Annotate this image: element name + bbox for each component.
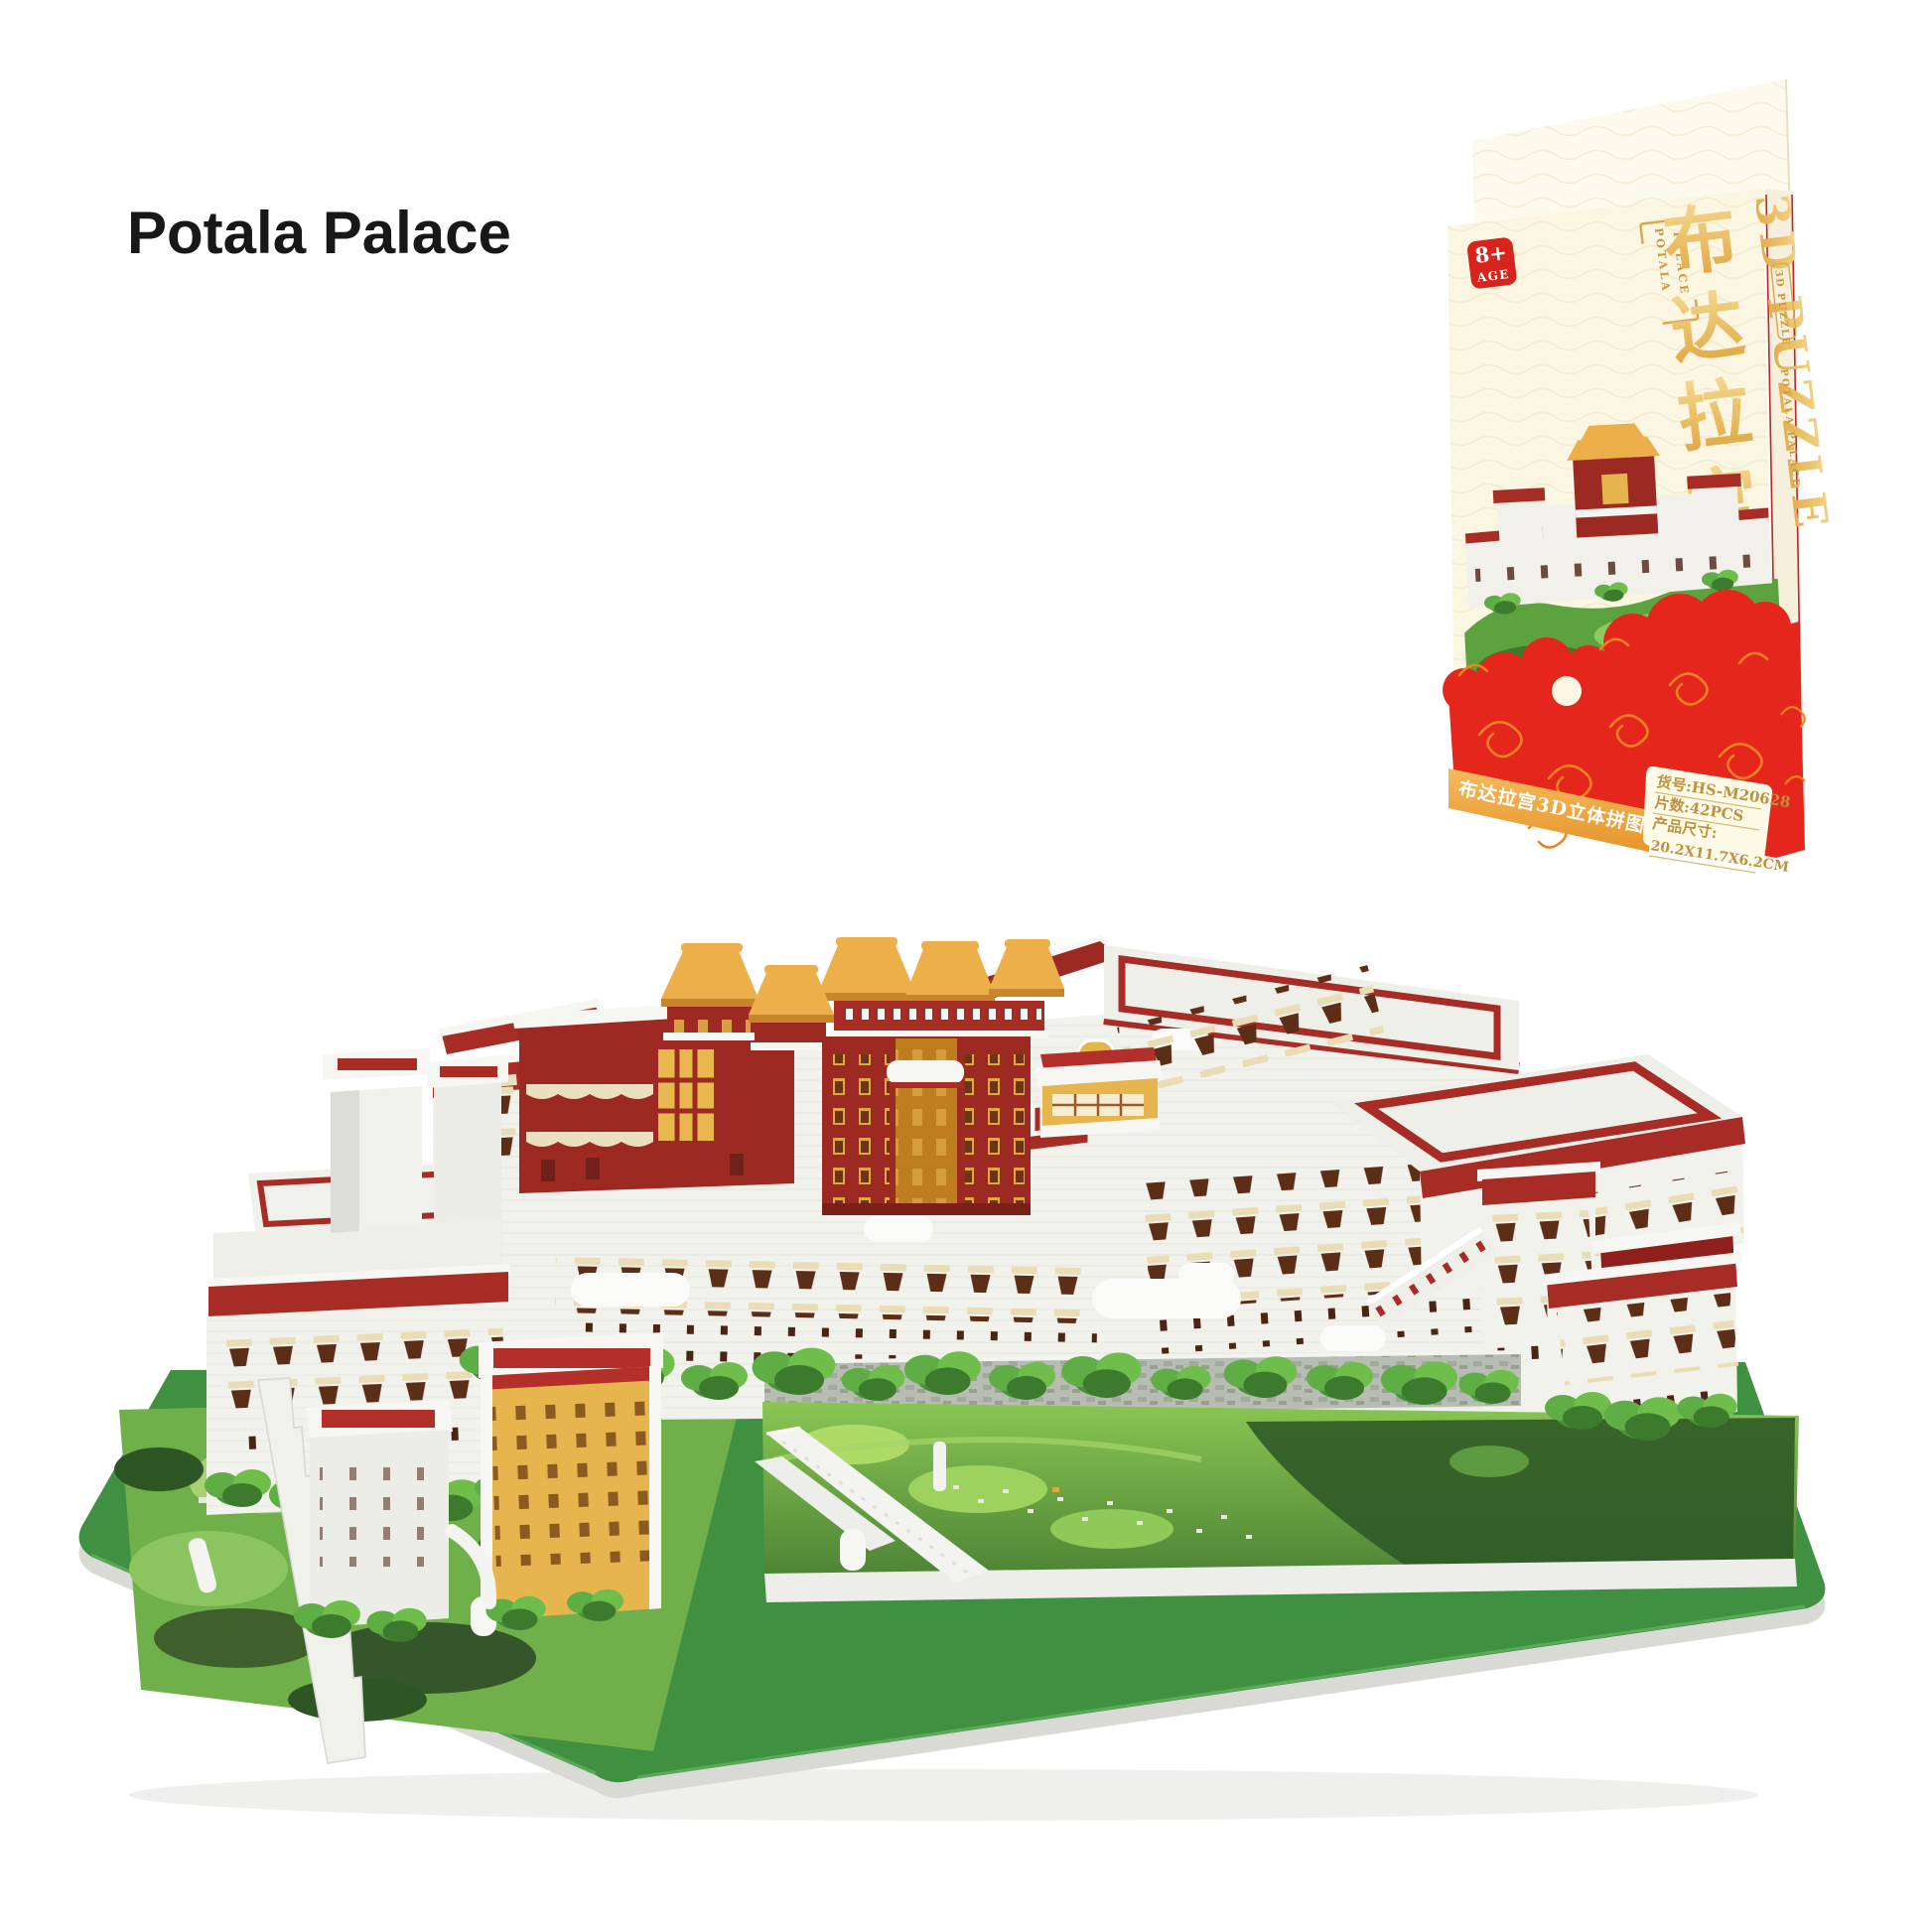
svg-text:布: 布: [1659, 195, 1742, 288]
age-badge: 8+ AGE: [1466, 236, 1518, 289]
white-court-building: [306, 1400, 453, 1628]
age-number: 8+: [1473, 239, 1508, 268]
red-palace: [822, 1036, 1031, 1215]
yellow-pavilion: [1035, 1040, 1164, 1138]
svg-text:拉: 拉: [1673, 369, 1756, 463]
product-render: 8+ AGE POTALA PALACE 布 达 拉 宫 3D PUZZLE: [0, 0, 1932, 1932]
ground-shadow: [129, 1769, 1757, 1821]
product-box: 8+ AGE POTALA PALACE 布 达 拉 宫 3D PUZZLE: [1443, 79, 1839, 876]
puzzle-model: [79, 935, 1826, 1821]
svg-text:达: 达: [1666, 282, 1749, 375]
twin-towers: [323, 1048, 508, 1233]
screenshot-root: Potala Palace: [0, 0, 1932, 1932]
